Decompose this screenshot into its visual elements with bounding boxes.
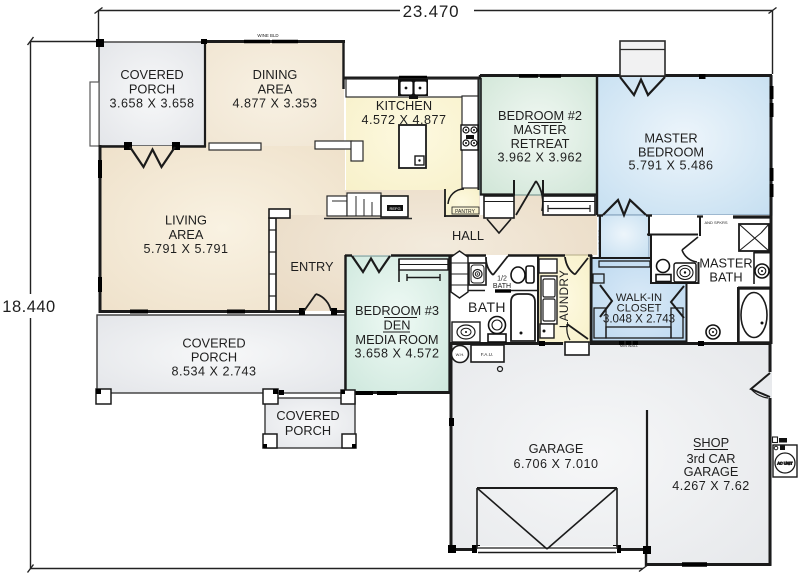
svg-text:REFG: REFG [389,206,400,211]
svg-text:RETREAT: RETREAT [511,136,570,151]
svg-text:BATH: BATH [709,270,742,285]
svg-text:AC UNIT: AC UNIT [777,462,793,466]
svg-text:WINE BLD: WINE BLD [257,33,278,38]
svg-text:MASTER: MASTER [699,256,752,271]
svg-text:23.470: 23.470 [403,2,460,21]
svg-text:5.791 X 5.791: 5.791 X 5.791 [144,242,229,256]
svg-text:BATH: BATH [468,299,506,315]
svg-text:BEDROOM: BEDROOM [638,145,704,160]
svg-text:HALL: HALL [452,228,484,243]
svg-text:LIVING: LIVING [165,213,207,228]
svg-text:DEN: DEN [383,318,410,333]
svg-text:W.H.: W.H. [456,352,465,357]
svg-text:5.791 X 5.486: 5.791 X 5.486 [629,159,714,173]
svg-text:3.048 X 2.743: 3.048 X 2.743 [603,313,675,326]
svg-text:4.267 X 7.62: 4.267 X 7.62 [672,479,749,493]
svg-text:3.658 X 4.572: 3.658 X 4.572 [355,347,440,361]
svg-text:AND SPKRS: AND SPKRS [704,220,727,225]
svg-text:BEDROOM #2: BEDROOM #2 [498,108,582,123]
svg-text:MASTER: MASTER [644,131,697,146]
svg-text:1/2: 1/2 [497,276,507,283]
svg-text:DINING: DINING [253,67,298,82]
svg-text:GARAGE: GARAGE [684,464,739,479]
svg-text:PORCH: PORCH [191,350,237,365]
svg-text:BEDROOM #3: BEDROOM #3 [355,303,439,318]
svg-text:COVERED: COVERED [182,336,245,351]
svg-text:AREA: AREA [258,82,293,97]
svg-text:4.877 X 3.353: 4.877 X 3.353 [233,97,318,111]
svg-text:KITCHEN: KITCHEN [376,98,432,113]
svg-text:AREA: AREA [169,227,204,242]
svg-text:ENTRY: ENTRY [290,259,334,274]
svg-text:MIN WALL: MIN WALL [620,344,638,348]
svg-text:8.534 X 2.743: 8.534 X 2.743 [172,365,257,379]
svg-text:SHOP: SHOP [693,435,729,450]
svg-text:PORCH: PORCH [285,423,331,438]
svg-text:MEDIA ROOM: MEDIA ROOM [355,332,438,347]
svg-text:GARAGE: GARAGE [529,441,584,456]
svg-text:COVERED: COVERED [276,408,339,423]
svg-text:6.706 X 7.010: 6.706 X 7.010 [514,457,599,471]
svg-text:3.658 X 3.658: 3.658 X 3.658 [110,97,195,111]
svg-text:PORCH: PORCH [129,82,175,97]
svg-text:BATH: BATH [493,283,511,290]
svg-text:3.962 X 3.962: 3.962 X 3.962 [498,151,583,165]
svg-text:LAUNDRY: LAUNDRY [557,270,571,328]
svg-text:MASTER: MASTER [513,122,566,137]
svg-text:F.A.U.: F.A.U. [481,352,494,357]
svg-text:18.440: 18.440 [2,298,55,316]
svg-text:AND SPKR: AND SPKR [597,230,602,251]
svg-text:COVERED: COVERED [120,67,183,82]
